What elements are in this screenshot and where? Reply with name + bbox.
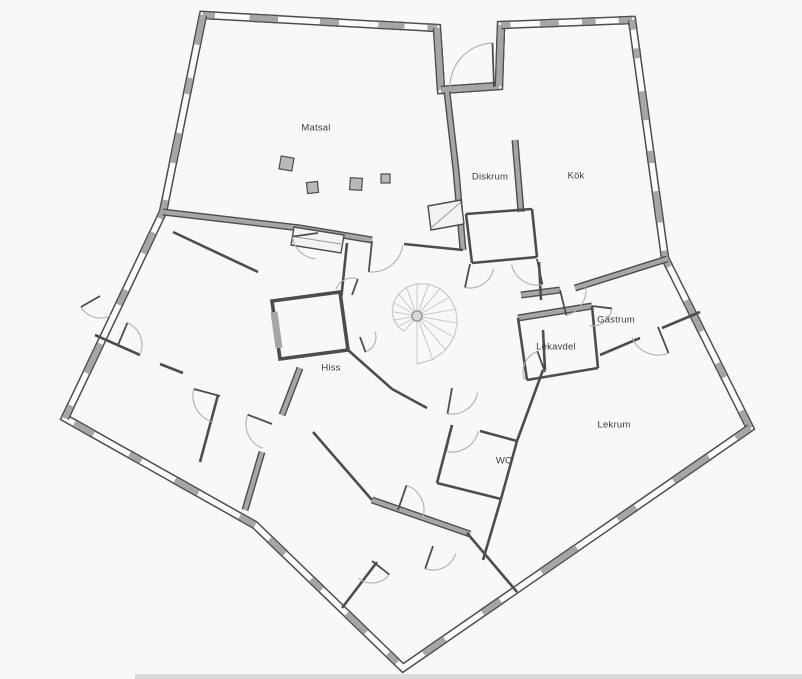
- room-label-kok: Kök: [568, 171, 585, 182]
- room-label-hiss: Hiss: [321, 363, 340, 374]
- room-label-diskrum: Diskrum: [472, 172, 508, 183]
- room-label-gastrum: Gästrum: [597, 315, 635, 326]
- room-label-matsal: Matsal: [301, 123, 330, 134]
- floorplan: MatsalDiskrumKökGästrumLekavdelLekrumWCH…: [0, 0, 802, 679]
- floorplan-drawing: [0, 0, 802, 679]
- room-label-wc: WC: [496, 456, 512, 467]
- room-label-lekrum: Lekrum: [598, 420, 631, 431]
- bottom-border-strip: [135, 674, 802, 679]
- room-label-lekavdel: Lekavdel: [536, 342, 576, 353]
